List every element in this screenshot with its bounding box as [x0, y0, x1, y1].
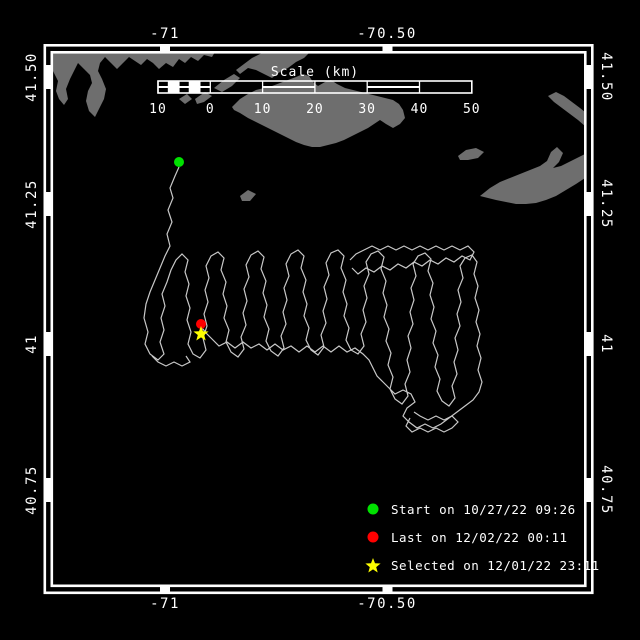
bottom-axis-label-lon-71: -71 — [150, 596, 180, 612]
start-marker — [174, 157, 184, 167]
start-marker-icon — [364, 500, 382, 518]
legend-item-selected: Selected on 12/01/22 23:11 — [364, 556, 600, 574]
right-tick — [584, 65, 594, 89]
glider-track-line — [406, 412, 458, 432]
landmass — [240, 190, 256, 201]
scalebar-tick-label: 30 — [358, 102, 376, 117]
right-tick — [584, 478, 594, 502]
right-tick — [584, 332, 594, 356]
left-tick — [44, 192, 54, 216]
landmass — [458, 148, 484, 160]
glider-track-map-screen: Scale (km)1001020304050 -71 -70.50 -71 -… — [0, 0, 640, 640]
top-axis-label-lon-7050: -70.50 — [357, 26, 417, 42]
right-axis-label-4150: 41.50 — [598, 52, 614, 102]
scalebar-tick-label: 10 — [254, 102, 272, 117]
top-tick — [383, 44, 393, 54]
scalebar-tick-label: 10 — [149, 102, 167, 117]
scalebar-title: Scale (km) — [271, 65, 359, 80]
glider-track-line — [350, 246, 474, 274]
legend-selected-label: Selected on 12/01/22 23:11 — [391, 558, 600, 573]
top-tick — [160, 44, 170, 54]
top-axis-label-lon-71: -71 — [150, 26, 180, 42]
landmass — [480, 147, 585, 204]
right-tick — [584, 192, 594, 216]
legend-item-last: Last on 12/02/22 00:11 — [364, 528, 568, 546]
left-tick — [44, 478, 54, 502]
last-marker-icon — [364, 528, 382, 546]
right-axis-label-41: 41 — [598, 334, 614, 354]
legend-item-start: Start on 10/27/22 09:26 — [364, 500, 576, 518]
right-axis-label-4075: 40.75 — [598, 465, 614, 515]
left-axis-label-41: 41 — [24, 334, 40, 354]
glider-track-line — [152, 356, 190, 366]
scalebar-tick-label: 50 — [463, 102, 481, 117]
left-axis-label-4125: 41.25 — [24, 179, 40, 229]
bottom-tick — [383, 585, 393, 595]
scalebar-tick-label: 40 — [411, 102, 429, 117]
scalebar-tick-label: 0 — [206, 102, 215, 117]
scalebar-tick-label: 20 — [306, 102, 324, 117]
glider-track-line — [144, 167, 482, 428]
bottom-tick — [160, 585, 170, 595]
left-axis-label-4150: 41.50 — [24, 52, 40, 102]
scalebar-segment — [168, 81, 178, 93]
landmass — [214, 74, 240, 92]
left-tick — [44, 65, 54, 89]
right-axis-label-4125: 41.25 — [598, 179, 614, 229]
left-axis-label-4075: 40.75 — [24, 465, 40, 515]
left-tick — [44, 332, 54, 356]
legend-start-label: Start on 10/27/22 09:26 — [391, 502, 576, 517]
selected-marker-icon — [364, 556, 382, 574]
scalebar-segment — [189, 81, 199, 93]
bottom-axis-label-lon-7050: -70.50 — [357, 596, 417, 612]
landmass — [548, 92, 585, 126]
legend-last-label: Last on 12/02/22 00:11 — [391, 530, 568, 545]
landmass — [179, 94, 192, 104]
